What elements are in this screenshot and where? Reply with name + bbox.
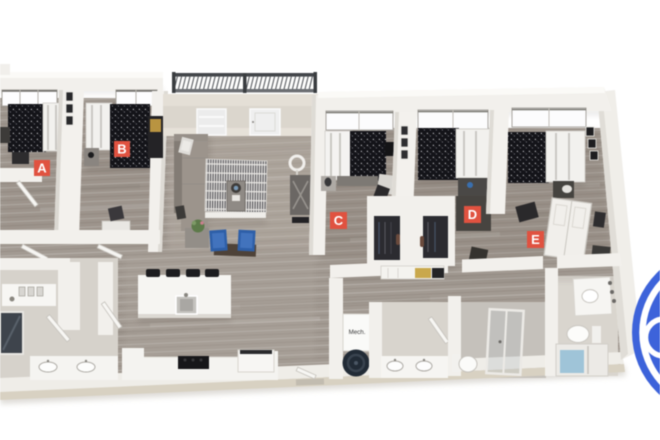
svg-text:E: E: [531, 232, 540, 247]
svg-text:Mech.: Mech.: [349, 329, 366, 336]
svg-text:A: A: [37, 161, 47, 176]
svg-text:B: B: [117, 142, 126, 157]
svg-text:D: D: [468, 207, 477, 222]
svg-text:C: C: [334, 213, 344, 228]
